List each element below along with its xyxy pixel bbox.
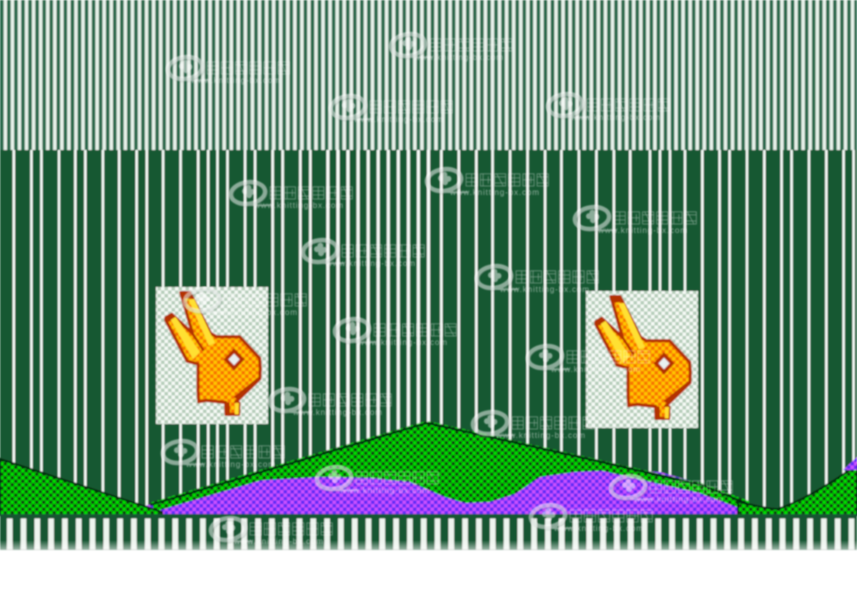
svg-text:www.knitting-bx.com: www.knitting-bx.com bbox=[553, 524, 644, 533]
svg-text:www.knitting-bx.com: www.knitting-bx.com bbox=[339, 486, 430, 495]
svg-text:www.knitting-bx.com: www.knitting-bx.com bbox=[207, 308, 298, 317]
svg-text:www.knitting-bx.com: www.knitting-bx.com bbox=[597, 226, 688, 235]
svg-text:www.knitting-bx.com: www.knitting-bx.com bbox=[570, 113, 661, 122]
svg-text:www.knitting-bx.com: www.knitting-bx.com bbox=[413, 53, 504, 62]
svg-text:www.knitting-bx.com: www.knitting-bx.com bbox=[633, 495, 724, 504]
svg-text:www.knitting-bx.com: www.knitting-bx.com bbox=[325, 259, 416, 268]
svg-text:www.knitting-bx.com: www.knitting-bx.com bbox=[253, 201, 344, 210]
svg-text:www.knitting-bx.com: www.knitting-bx.com bbox=[190, 76, 281, 85]
svg-text:www.knitting-bx.com: www.knitting-bx.com bbox=[449, 188, 540, 197]
svg-text:www.knitting-bx.com: www.knitting-bx.com bbox=[292, 408, 383, 417]
svg-text:www.knitting-bx.com: www.knitting-bx.com bbox=[550, 365, 641, 374]
svg-text:www.knitting-bx.com: www.knitting-bx.com bbox=[499, 285, 590, 294]
svg-text:www.knitting-bx.com: www.knitting-bx.com bbox=[233, 537, 324, 546]
svg-text:www.knitting-bx.com: www.knitting-bx.com bbox=[353, 115, 444, 124]
svg-text:www.knitting-bx.com: www.knitting-bx.com bbox=[185, 460, 276, 469]
svg-text:www.knitting-bx.com: www.knitting-bx.com bbox=[495, 431, 586, 440]
svg-text:www.knitting-bx.com: www.knitting-bx.com bbox=[357, 338, 448, 347]
